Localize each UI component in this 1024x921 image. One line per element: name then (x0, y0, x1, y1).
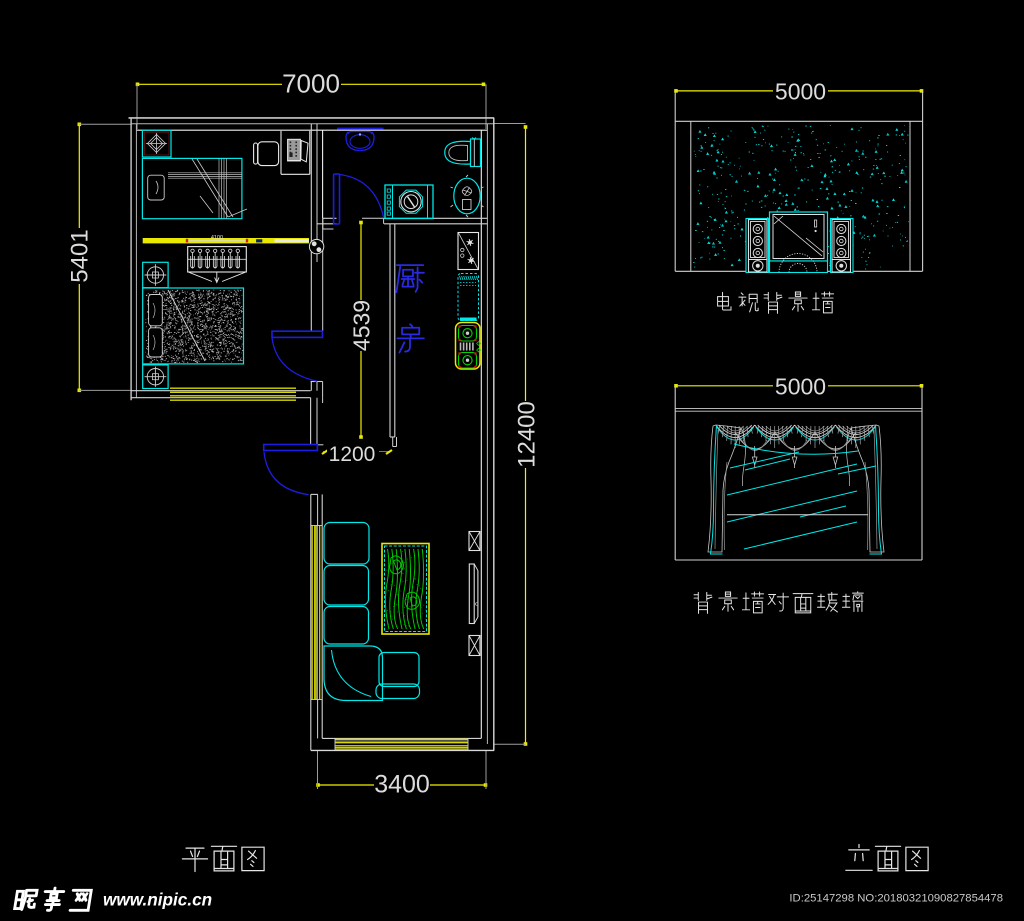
svg-text:ID:25147298 NO:201803210908278: ID:25147298 NO:20180321090827854478 (789, 893, 1003, 905)
svg-text:5401: 5401 (67, 229, 94, 282)
svg-text:7000: 7000 (282, 69, 340, 99)
svg-text:4100: 4100 (211, 235, 223, 241)
svg-text:5000: 5000 (775, 79, 826, 105)
svg-text:1200: 1200 (329, 443, 376, 466)
svg-text:4539: 4539 (349, 300, 375, 351)
svg-text:12400: 12400 (514, 401, 541, 468)
svg-text:5000: 5000 (775, 374, 826, 400)
svg-text:www.nipic.cn: www.nipic.cn (103, 890, 212, 910)
svg-text:3400: 3400 (374, 771, 430, 799)
